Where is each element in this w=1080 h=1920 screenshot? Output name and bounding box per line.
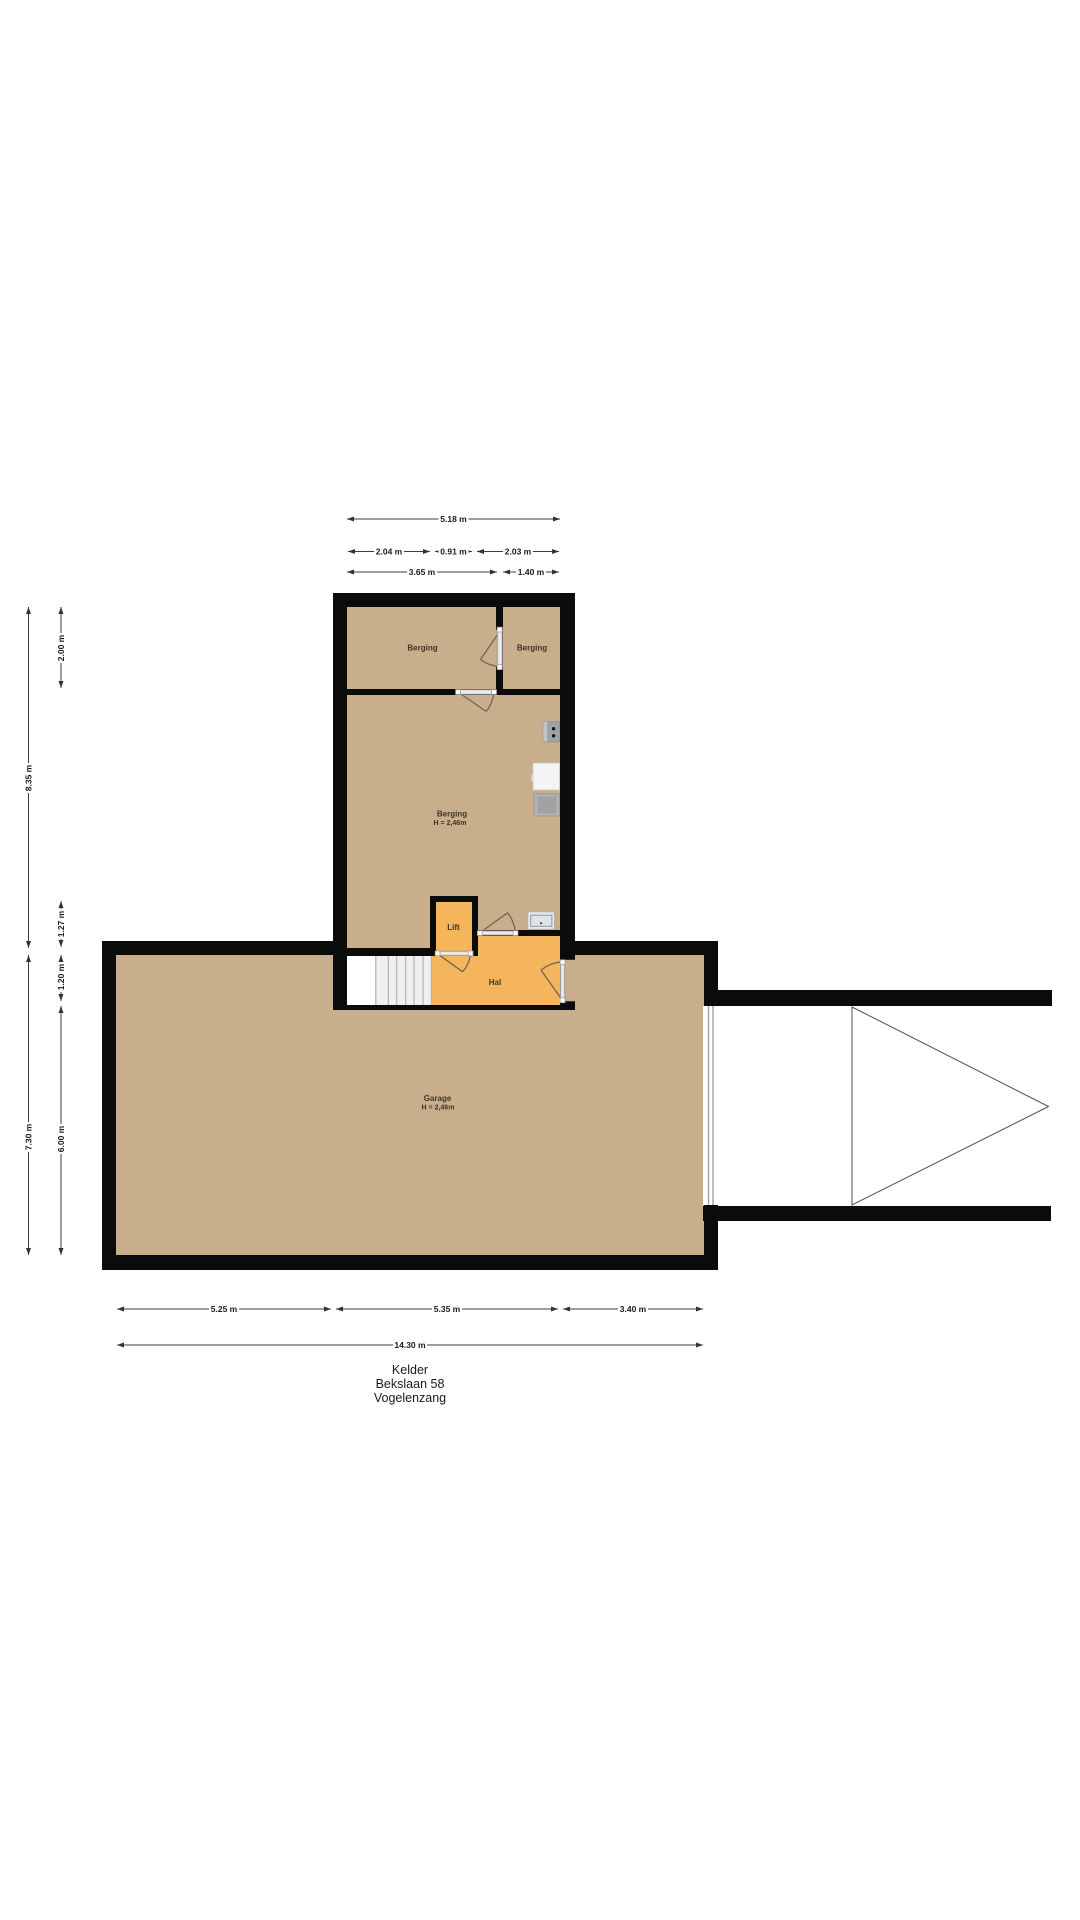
svg-text:5.25 m: 5.25 m <box>211 1304 238 1314</box>
svg-text:2.00 m: 2.00 m <box>56 634 66 661</box>
svg-text:14.30 m: 14.30 m <box>394 1340 426 1350</box>
svg-text:5.35 m: 5.35 m <box>434 1304 461 1314</box>
svg-text:1.27 m: 1.27 m <box>56 910 66 937</box>
svg-text:7.30 m: 7.30 m <box>24 1123 34 1150</box>
svg-text:5.18 m: 5.18 m <box>440 514 467 524</box>
svg-text:H = 2,46m: H = 2,46m <box>434 820 467 827</box>
svg-text:1.20 m: 1.20 m <box>56 963 66 990</box>
svg-text:Berging: Berging <box>437 810 467 819</box>
svg-text:Bekslaan 58: Bekslaan 58 <box>376 1377 445 1391</box>
svg-text:1.40 m: 1.40 m <box>518 567 545 577</box>
svg-text:Hal: Hal <box>489 978 501 987</box>
svg-text:2.04 m: 2.04 m <box>376 547 403 557</box>
svg-text:Kelder: Kelder <box>392 1363 428 1377</box>
svg-text:2.03 m: 2.03 m <box>505 547 532 557</box>
svg-text:8.35 m: 8.35 m <box>24 764 34 791</box>
svg-text:H = 2,46m: H = 2,46m <box>422 1105 455 1112</box>
svg-text:Vogelenzang: Vogelenzang <box>374 1391 446 1405</box>
svg-text:3.40 m: 3.40 m <box>620 1304 647 1314</box>
svg-text:Berging: Berging <box>407 644 437 653</box>
svg-text:6.00 m: 6.00 m <box>56 1125 66 1152</box>
svg-text:0.91 m: 0.91 m <box>440 547 467 557</box>
svg-text:Garage: Garage <box>424 1094 452 1103</box>
svg-text:3.65 m: 3.65 m <box>409 567 436 577</box>
svg-text:Berging: Berging <box>517 644 547 653</box>
svg-text:Lift: Lift <box>447 923 460 932</box>
